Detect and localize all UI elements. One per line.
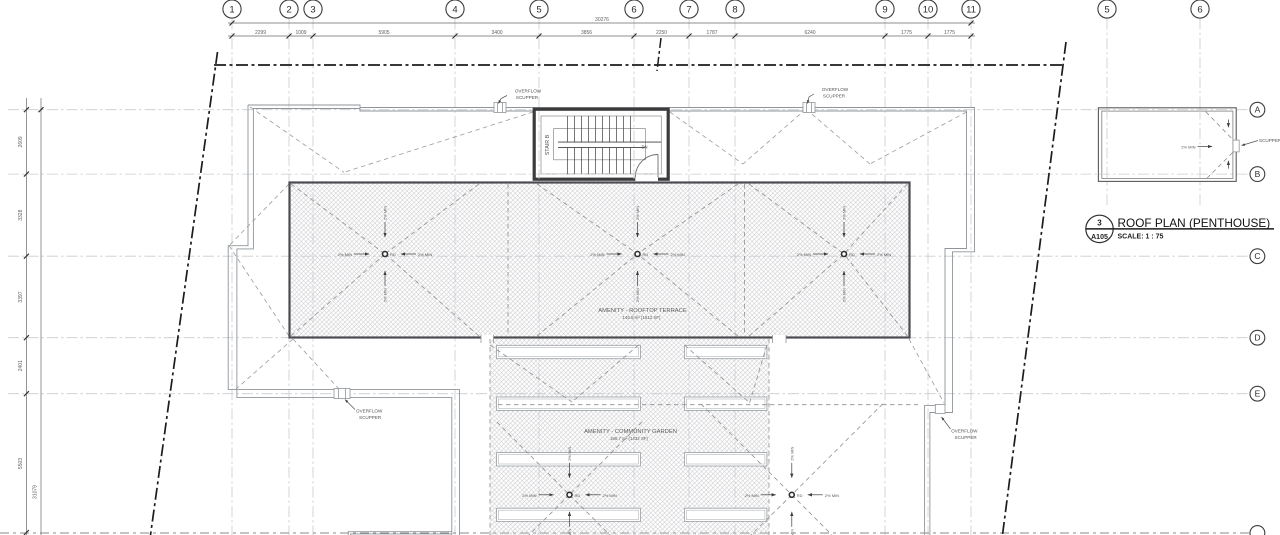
svg-text:1009: 1009 [295, 30, 306, 36]
svg-text:11: 11 [966, 4, 976, 15]
svg-text:2299: 2299 [255, 30, 266, 36]
svg-text:2% MIN: 2% MIN [418, 252, 432, 257]
svg-text:2% MIN: 2% MIN [338, 252, 352, 257]
svg-text:30276: 30276 [595, 17, 609, 23]
svg-text:6240: 6240 [804, 30, 815, 36]
svg-text:3: 3 [310, 4, 315, 15]
svg-text:3328: 3328 [18, 209, 24, 220]
svg-text:RD: RD [797, 493, 803, 498]
svg-text:2250: 2250 [656, 30, 667, 36]
svg-text:1775: 1775 [901, 30, 912, 36]
svg-text:2% MIN: 2% MIN [797, 252, 811, 257]
svg-text:C: C [1254, 251, 1260, 261]
svg-text:3: 3 [1097, 219, 1102, 228]
svg-text:5905: 5905 [378, 30, 389, 36]
svg-text:2% MIN: 2% MIN [522, 493, 536, 498]
svg-text:10: 10 [923, 4, 934, 15]
svg-text:OVERFLOW: OVERFLOW [356, 409, 383, 414]
svg-text:2% MIN: 2% MIN [1181, 144, 1195, 149]
svg-text:OVERFLOW: OVERFLOW [822, 87, 849, 92]
svg-text:A105: A105 [1091, 234, 1108, 241]
svg-text:2% MIN: 2% MIN [671, 252, 685, 257]
svg-text:2% MIN: 2% MIN [590, 252, 604, 257]
svg-text:3400: 3400 [491, 30, 502, 36]
svg-text:6: 6 [631, 4, 636, 15]
svg-text:RD: RD [575, 493, 581, 498]
svg-text:5503: 5503 [18, 458, 24, 469]
svg-text:A: A [1255, 105, 1261, 115]
svg-text:SCUPPER: SCUPPER [823, 94, 846, 99]
svg-text:2% MIN: 2% MIN [789, 529, 794, 535]
svg-text:1775: 1775 [944, 30, 955, 36]
svg-text:DN: DN [641, 144, 647, 149]
svg-text:D: D [1254, 333, 1260, 343]
svg-text:AMENITY - ROOFTOP TERRACE: AMENITY - ROOFTOP TERRACE [598, 308, 687, 314]
svg-text:AMENITY - COMMUNITY GARDEN: AMENITY - COMMUNITY GARDEN [584, 429, 677, 435]
svg-text:2% MIN: 2% MIN [567, 446, 572, 460]
svg-text:2% MIN: 2% MIN [635, 288, 640, 302]
svg-text:2% MIN: 2% MIN [383, 288, 388, 302]
svg-text:2% MIN: 2% MIN [842, 288, 847, 302]
svg-text:2% MIN: 2% MIN [383, 206, 388, 220]
svg-text:8: 8 [732, 4, 737, 15]
svg-text:5: 5 [536, 4, 541, 15]
svg-text:SCALE: 1 : 75: SCALE: 1 : 75 [1118, 234, 1164, 241]
svg-text:145.6 m² (1512 SF): 145.6 m² (1512 SF) [622, 315, 661, 320]
svg-text:1: 1 [229, 4, 234, 15]
svg-text:OVERFLOW: OVERFLOW [951, 429, 978, 434]
svg-text:1787: 1787 [706, 30, 717, 36]
svg-text:RD: RD [390, 252, 396, 257]
svg-text:SCUPPER: SCUPPER [516, 95, 539, 100]
svg-text:E: E [1255, 389, 1261, 399]
svg-text:STAIR B: STAIR B [545, 134, 551, 155]
svg-text:4: 4 [452, 4, 457, 15]
svg-text:5: 5 [1104, 4, 1109, 15]
svg-text:186.7 m² (1432 SF): 186.7 m² (1432 SF) [610, 436, 649, 441]
svg-text:2% MIN: 2% MIN [842, 206, 847, 220]
svg-text:SCUPPER: SCUPPER [955, 435, 978, 440]
svg-text:2: 2 [286, 4, 291, 15]
svg-text:2% MIN: 2% MIN [603, 493, 617, 498]
svg-text:2% MIN: 2% MIN [789, 446, 794, 460]
svg-text:3856: 3856 [581, 30, 592, 36]
svg-text:2% MIN: 2% MIN [825, 493, 839, 498]
svg-text:SCUPPER: SCUPPER [359, 415, 382, 420]
svg-text:2% MIN: 2% MIN [745, 493, 759, 498]
svg-text:31079: 31079 [33, 485, 39, 499]
svg-text:RD: RD [643, 252, 649, 257]
svg-text:OVERFLOW: OVERFLOW [515, 89, 542, 94]
svg-text:2401: 2401 [18, 360, 24, 371]
svg-text:2% MIN: 2% MIN [635, 206, 640, 220]
svg-text:6: 6 [1197, 4, 1202, 15]
svg-text:9: 9 [882, 4, 887, 15]
svg-text:3397: 3397 [18, 291, 24, 302]
svg-text:RD: RD [849, 252, 855, 257]
svg-text:2609: 2609 [18, 136, 24, 147]
svg-text:B: B [1255, 169, 1261, 179]
svg-text:ROOF PLAN (PENTHOUSE): ROOF PLAN (PENTHOUSE) [1118, 216, 1271, 230]
svg-text:SCUPPER: SCUPPER [1259, 138, 1280, 143]
svg-text:2% MIN: 2% MIN [877, 252, 891, 257]
svg-text:2% MIN: 2% MIN [567, 529, 572, 535]
svg-text:7: 7 [686, 4, 691, 15]
